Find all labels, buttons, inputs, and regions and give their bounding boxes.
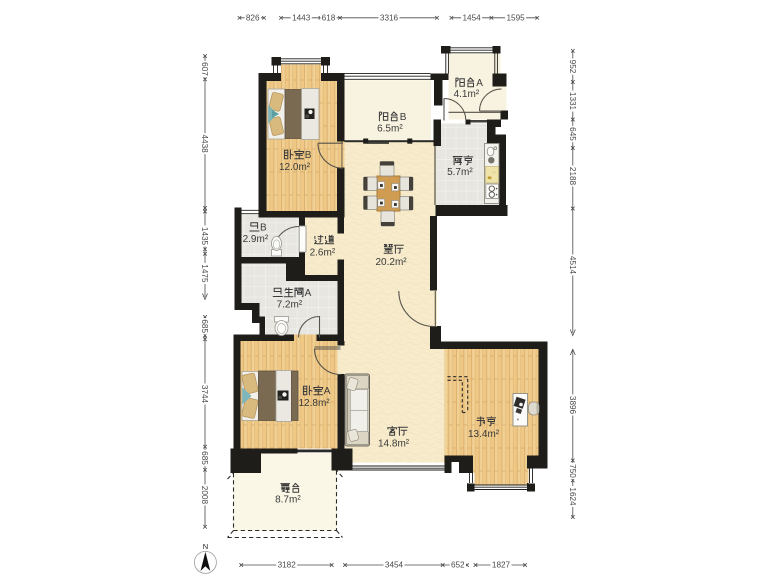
svg-text:2.6m²: 2.6m² <box>310 248 336 259</box>
svg-text:750: 750 <box>568 464 577 478</box>
svg-text:4.1m²: 4.1m² <box>454 89 480 100</box>
svg-text:1827: 1827 <box>492 561 511 570</box>
svg-text:20.2m²: 20.2m² <box>376 257 408 268</box>
svg-text:652: 652 <box>451 561 465 570</box>
svg-text:3182: 3182 <box>278 561 297 570</box>
svg-text:1443: 1443 <box>292 14 311 23</box>
svg-text:5.7m²: 5.7m² <box>447 167 473 178</box>
svg-text:1454: 1454 <box>462 14 481 23</box>
svg-text:B: B <box>260 223 267 234</box>
svg-text:A: A <box>324 386 331 397</box>
svg-text:3744: 3744 <box>200 385 209 404</box>
svg-text:618: 618 <box>322 14 336 23</box>
svg-text:3454: 3454 <box>385 561 404 570</box>
svg-text:7.2m²: 7.2m² <box>277 300 303 311</box>
svg-text:14.8m²: 14.8m² <box>378 439 410 450</box>
svg-text:13.4m²: 13.4m² <box>468 429 500 440</box>
svg-text:826: 826 <box>246 14 260 23</box>
svg-text:952: 952 <box>568 60 577 74</box>
svg-text:2.9m²: 2.9m² <box>243 234 269 245</box>
svg-text:1331: 1331 <box>568 92 577 111</box>
svg-text:1624: 1624 <box>568 487 577 506</box>
svg-text:B: B <box>305 150 312 161</box>
svg-text:4438: 4438 <box>200 134 209 153</box>
svg-text:B: B <box>400 112 407 123</box>
svg-text:3896: 3896 <box>568 396 577 415</box>
svg-text:1475: 1475 <box>200 264 209 283</box>
svg-text:645: 645 <box>568 127 577 141</box>
svg-text:A: A <box>476 78 483 89</box>
svg-text:N: N <box>203 542 208 551</box>
svg-text:1595: 1595 <box>506 14 525 23</box>
svg-text:607: 607 <box>200 62 209 76</box>
svg-text:12.8m²: 12.8m² <box>299 398 331 409</box>
svg-text:685: 685 <box>200 319 209 333</box>
svg-text:8.7m²: 8.7m² <box>275 495 301 506</box>
svg-text:1435: 1435 <box>200 227 209 246</box>
svg-text:2188: 2188 <box>568 167 577 186</box>
svg-text:2008: 2008 <box>200 486 209 505</box>
svg-text:6.5m²: 6.5m² <box>377 124 403 135</box>
svg-text:4514: 4514 <box>568 256 577 275</box>
svg-text:12.0m²: 12.0m² <box>279 162 311 173</box>
svg-text:685: 685 <box>200 451 209 465</box>
svg-text:3316: 3316 <box>380 14 399 23</box>
svg-text:A: A <box>305 288 312 299</box>
